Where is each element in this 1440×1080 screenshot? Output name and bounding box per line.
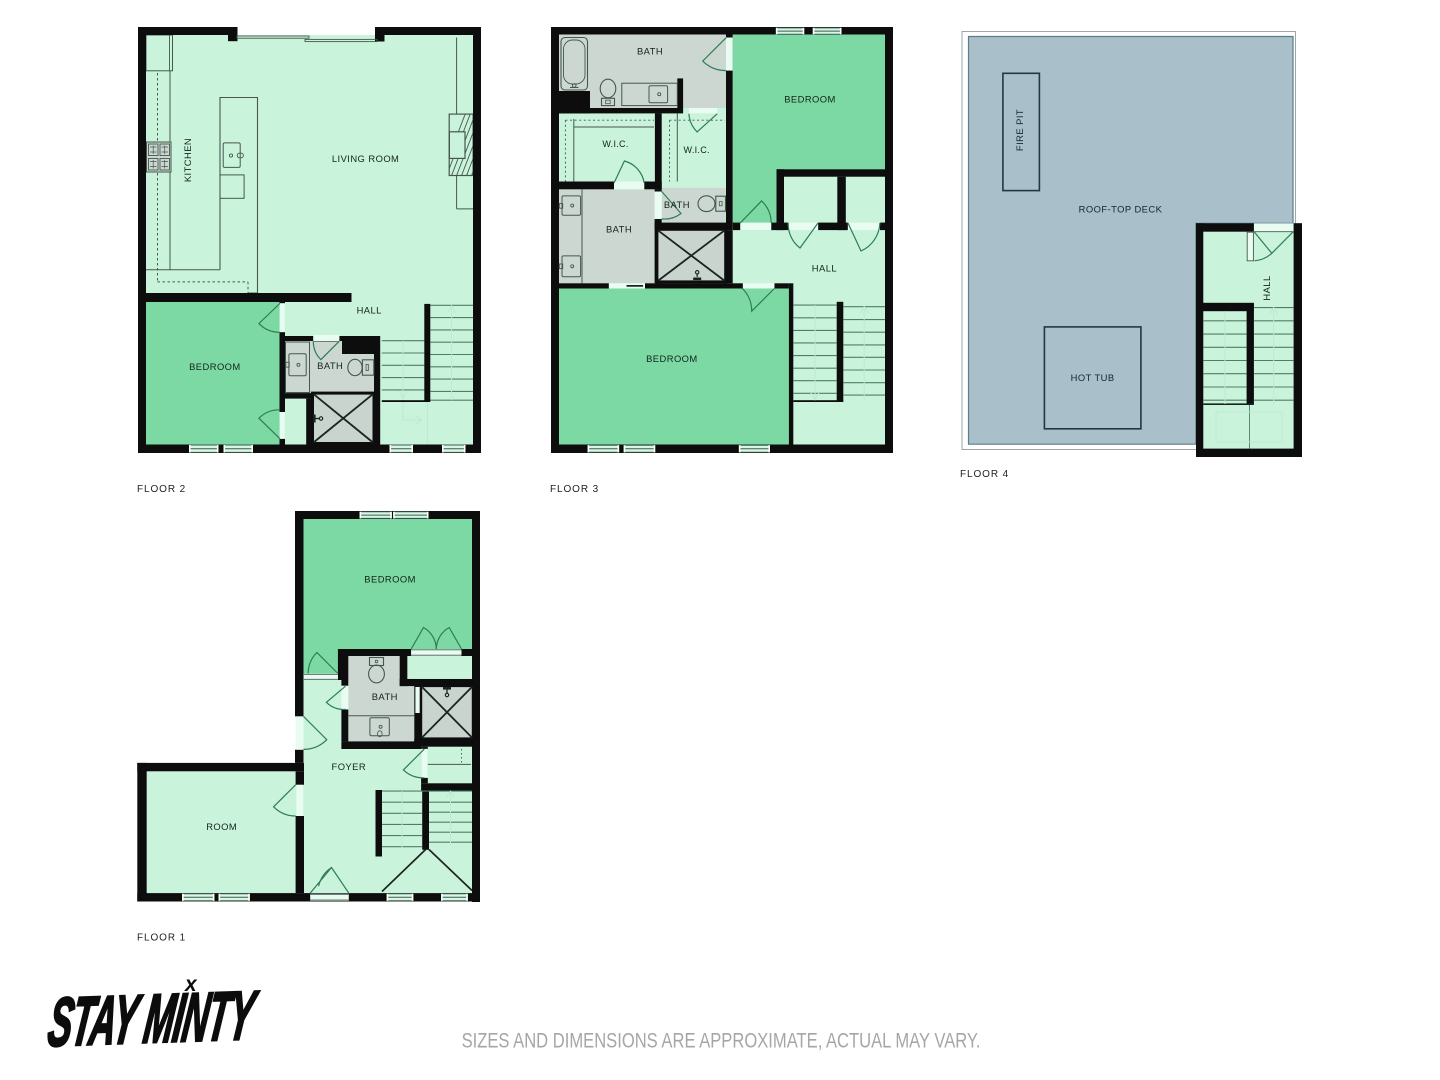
svg-text:ROOF-TOP DECK: ROOF-TOP DECK bbox=[1079, 204, 1163, 215]
svg-text:FLOOR 2: FLOOR 2 bbox=[137, 484, 186, 495]
svg-text:FLOOR 3: FLOOR 3 bbox=[550, 484, 599, 495]
svg-text:x: x bbox=[184, 973, 198, 996]
svg-text:BEDROOM: BEDROOM bbox=[189, 361, 241, 372]
svg-text:HALL: HALL bbox=[357, 305, 382, 316]
svg-text:SIZES AND DIMENSIONS ARE APPRO: SIZES AND DIMENSIONS ARE APPROXIMATE, AC… bbox=[462, 1030, 981, 1053]
svg-text:FIRE PIT: FIRE PIT bbox=[1014, 109, 1025, 151]
svg-text:KITCHEN: KITCHEN bbox=[182, 138, 193, 182]
svg-text:ROOM: ROOM bbox=[206, 821, 237, 832]
svg-text:BATH: BATH bbox=[637, 46, 663, 57]
svg-text:BATH: BATH bbox=[317, 360, 343, 371]
svg-text:HALL: HALL bbox=[1261, 275, 1272, 300]
svg-text:FLOOR 1: FLOOR 1 bbox=[137, 933, 186, 944]
svg-text:HOT TUB: HOT TUB bbox=[1071, 372, 1115, 383]
svg-text:BATH: BATH bbox=[606, 224, 632, 235]
svg-text:BATH: BATH bbox=[664, 199, 690, 210]
svg-text:STAY MINTY: STAY MINTY bbox=[44, 977, 262, 1061]
svg-text:FOYER: FOYER bbox=[332, 761, 367, 772]
svg-text:BEDROOM: BEDROOM bbox=[364, 574, 416, 585]
svg-text:W.I.C.: W.I.C. bbox=[684, 145, 710, 155]
svg-text:LIVING ROOM: LIVING ROOM bbox=[332, 153, 399, 164]
svg-text:BEDROOM: BEDROOM bbox=[646, 353, 698, 364]
svg-text:FLOOR 4: FLOOR 4 bbox=[960, 469, 1009, 480]
svg-text:HALL: HALL bbox=[812, 263, 837, 274]
svg-text:BATH: BATH bbox=[372, 691, 398, 702]
svg-text:BEDROOM: BEDROOM bbox=[784, 94, 836, 105]
svg-text:W.I.C.: W.I.C. bbox=[602, 139, 628, 149]
